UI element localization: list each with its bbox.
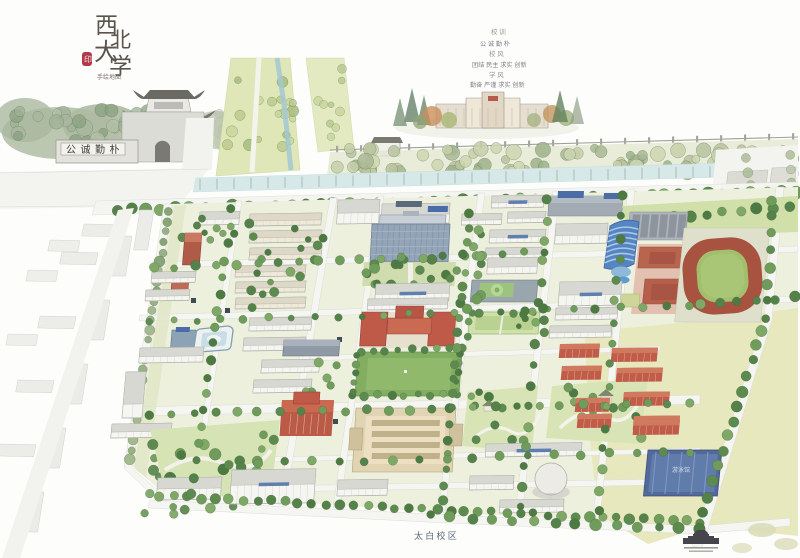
svg-text:印: 印: [84, 55, 92, 64]
svg-text:团结 民主 求实 创新: 团结 民主 求实 创新: [472, 61, 527, 69]
svg-text:公 诚 勤 朴: 公 诚 勤 朴: [480, 40, 510, 48]
svg-text:太 白 校 区: 太 白 校 区: [414, 530, 457, 541]
svg-text:校 训: 校 训: [491, 27, 506, 36]
svg-text:游泳馆: 游泳馆: [672, 466, 690, 474]
svg-text:公诚勤朴: 公诚勤朴: [66, 143, 124, 156]
svg-text:手绘地图: 手绘地图: [97, 73, 121, 81]
svg-text:学 风: 学 风: [489, 70, 504, 79]
svg-text:勤奋 严谨 求实 创新: 勤奋 严谨 求实 创新: [470, 81, 525, 89]
svg-text:校 风: 校 风: [489, 49, 504, 58]
